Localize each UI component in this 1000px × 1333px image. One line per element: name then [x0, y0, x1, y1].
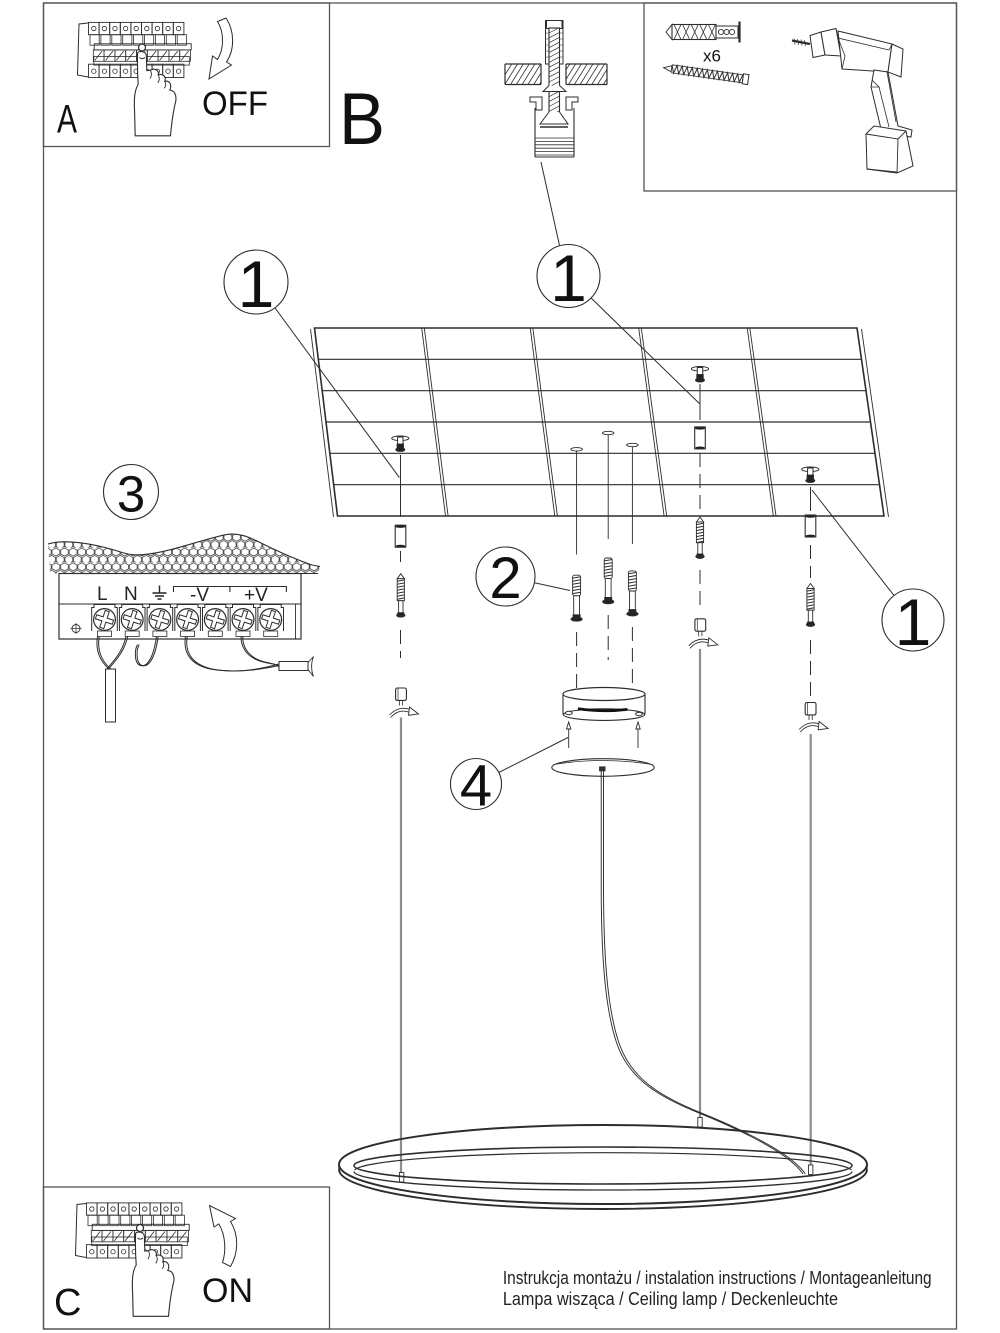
svg-text:x6: x6	[703, 47, 721, 66]
svg-text:1: 1	[238, 247, 275, 321]
svg-text:Lampa wisząca / Ceiling lamp /: Lampa wisząca / Ceiling lamp / Deckenleu…	[503, 1289, 838, 1309]
svg-text:-V: -V	[190, 585, 209, 606]
svg-text:B: B	[339, 79, 385, 160]
svg-text:+V: +V	[244, 585, 268, 606]
svg-text:1: 1	[895, 585, 932, 659]
svg-text:3: 3	[117, 466, 145, 523]
svg-text:OFF: OFF	[202, 85, 268, 123]
svg-text:Instrukcja montażu / instalati: Instrukcja montażu / instalation instruc…	[503, 1268, 932, 1288]
svg-text:A: A	[57, 98, 77, 142]
svg-text:C: C	[54, 1282, 81, 1324]
svg-text:N: N	[124, 584, 138, 605]
svg-text:L: L	[97, 584, 108, 605]
svg-text:ON: ON	[202, 1272, 253, 1310]
svg-text:4: 4	[460, 754, 492, 819]
svg-text:2: 2	[489, 546, 521, 611]
svg-text:1: 1	[550, 241, 587, 315]
